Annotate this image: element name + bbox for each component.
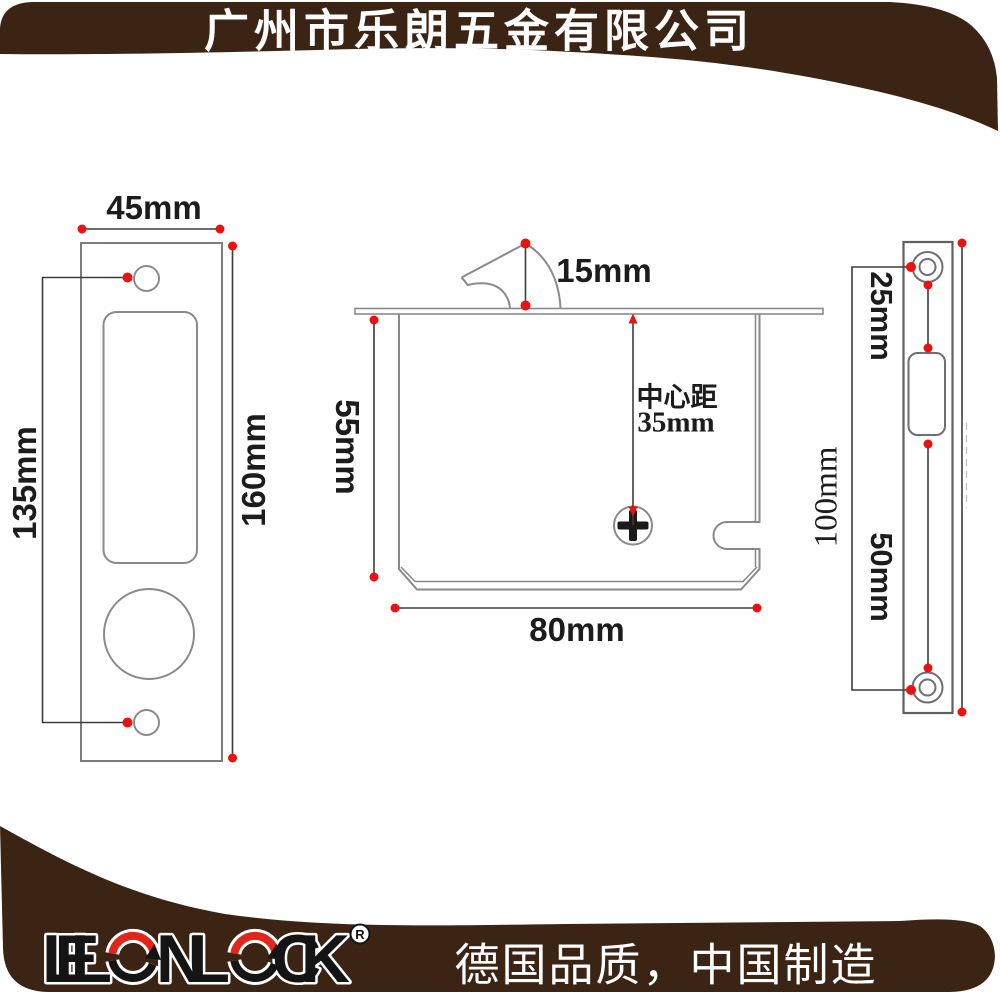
footer-tagline: 德国品质，中国制造: [454, 929, 877, 994]
dim-faceplate-height: 160mm: [235, 413, 273, 527]
lock-body-top-plate: [355, 309, 823, 315]
faceplate-front-view: [81, 243, 222, 761]
dim-faceplate-width: 45mm: [106, 189, 201, 227]
lock-body-inner-edge: [401, 314, 757, 582]
faceplate-screw-hole-bottom: [134, 710, 159, 735]
faceplate-screw-hole-top: [134, 266, 159, 291]
svg-text:LEL: LEL: [42, 921, 112, 995]
edge-screw-bottom-outer: [913, 673, 943, 703]
dim-edge-screw-spacing: 100mm: [809, 447, 846, 548]
dim-edge-bottom-segment: 50mm: [863, 532, 899, 622]
dim-edge-top-segment: 25mm: [863, 271, 899, 361]
brand-logo: LEL NL CK LEL NL CK R: [40, 920, 375, 995]
center-distance-value: 35mm: [637, 407, 714, 440]
dim-body-depth: 55mm: [328, 399, 366, 494]
dim-faceplate-hole-spacing: 135mm: [6, 426, 44, 540]
logo-ink: LEL NL CK R: [42, 921, 370, 995]
svg-text:CK: CK: [272, 921, 350, 995]
dim-hook-height: 15mm: [556, 252, 651, 290]
edge-plate-dimension-dots: [906, 239, 967, 717]
svg-text:NL: NL: [156, 921, 230, 995]
edge-screw-top-inner: [920, 259, 936, 275]
faceplate-dimension-dots: [78, 225, 238, 763]
lock-body-outline: [399, 314, 760, 590]
product-drawing-page: 广州市乐朗五金有限公司: [0, 0, 1000, 1000]
edge-latch-slot: [909, 353, 946, 435]
hook-bolt: [462, 244, 561, 309]
edge-screw-bottom-inner: [920, 680, 936, 696]
svg-text:R: R: [355, 927, 365, 942]
arrow-up: [629, 314, 638, 324]
edge-screw-top-outer: [913, 252, 943, 282]
registered-trademark-icon: R: [351, 925, 370, 944]
dim-body-width: 80mm: [529, 611, 624, 649]
lock-body-view: [355, 244, 823, 590]
faceplate-slot: [104, 312, 198, 563]
faceplate-outline: [81, 243, 222, 761]
faceplate-dimensions: [43, 229, 233, 758]
faceplate-knob-hole: [104, 589, 194, 679]
